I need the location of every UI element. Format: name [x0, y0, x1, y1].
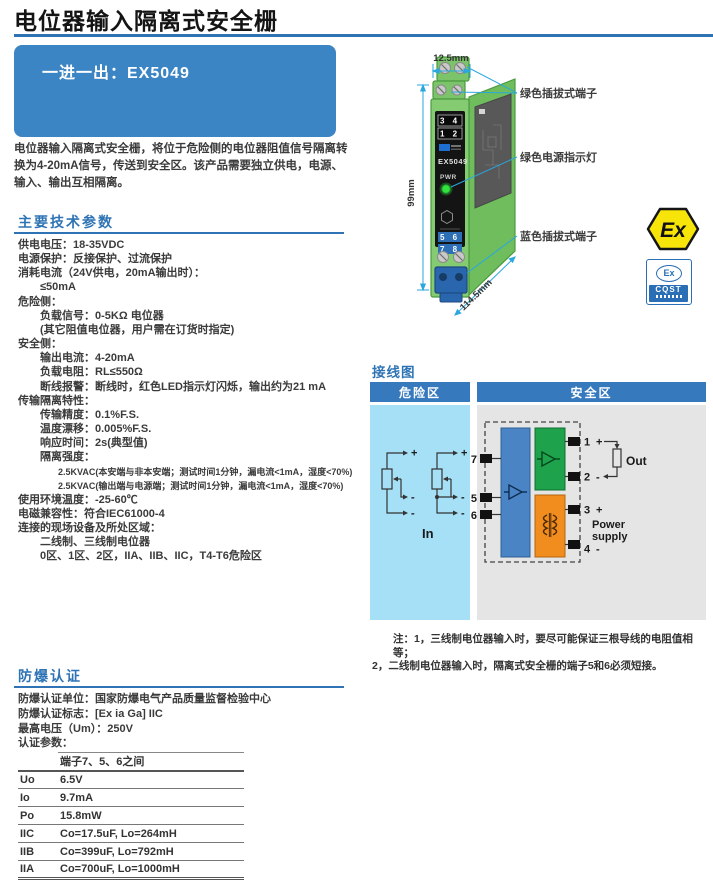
- spec-line: 2.5KVAC(本安端与非本安端；测试时间1分钟，漏电流<1mA，湿度<70%): [18, 465, 370, 479]
- spec-line: 二线制、三线制电位器: [18, 535, 370, 549]
- tech-params-divider: [14, 232, 344, 234]
- wiring-diagram: + - - + - - In: [370, 405, 706, 620]
- side-label-logo: [479, 109, 485, 114]
- pot1-minus2: -: [411, 508, 415, 520]
- spec-line: 响应时间：2s(典型值): [18, 436, 370, 450]
- cert-table-header-row: 端子7、5、6之间: [18, 753, 244, 771]
- cqst-band: CQST: [649, 285, 688, 302]
- potentiometer-2wire: [432, 453, 453, 513]
- power-led: [442, 185, 450, 193]
- page-title: 电位器输入隔离式安全栅: [14, 2, 278, 36]
- cert-table-row: Uo 6.5V: [18, 771, 244, 789]
- spec-line: (其它阻值电位器，用户需在订货时指定): [18, 323, 370, 337]
- spec-line: 传输隔离特性：: [18, 394, 370, 408]
- spec-line: 电磁兼容性：符合IEC61000-4: [18, 507, 370, 521]
- cert-param-value: 9.7mA: [58, 789, 244, 807]
- spec-line: 使用环境温度：-25-60℃: [18, 493, 370, 507]
- cert-line: 认证参数：: [18, 736, 271, 751]
- cert-param-name: Io: [18, 789, 58, 807]
- spec-line: 断线报警：断线时，红色LED指示灯闪烁，输出约为21 mA: [18, 380, 370, 394]
- terminal-5: 5: [471, 493, 477, 505]
- cqst-name: CQST: [649, 285, 688, 295]
- pot2-minus: -: [461, 492, 465, 504]
- cert-param-value: Co=700uF, Lo=1000mH: [58, 861, 244, 879]
- brand-logo: [439, 144, 450, 151]
- out-label: Out: [626, 454, 647, 468]
- cert-table-header-terminals: 端子7、5、6之间: [58, 753, 244, 771]
- cqst-ex-oval: Ex: [656, 265, 682, 282]
- cert-param-value: 6.5V: [58, 771, 244, 789]
- spec-line: 供电电压：18-35VDC: [18, 238, 370, 252]
- cert-param-value: 15.8mW: [58, 807, 244, 825]
- atex-ex-logo: Ex: [645, 205, 701, 253]
- spec-line: 负载电阻：RL≤550Ω: [18, 365, 370, 379]
- cert-table-row: IIB Co=399uF, Lo=792mH: [18, 843, 244, 861]
- cert-heading: 防爆认证: [18, 666, 82, 686]
- cert-line: 防爆认证标志：[Ex ia Ga] IIC: [18, 707, 271, 722]
- terminal-slot: [439, 273, 447, 281]
- terminal-2-sign: -: [596, 472, 600, 484]
- wiring-note-line: 注：1，三线制电位器输入时，要尽可能保证三根导线的电阻值相等；: [372, 633, 713, 660]
- terminal-1: 1: [584, 437, 590, 449]
- cert-table-row: IIA Co=700uF, Lo=1000mH: [18, 861, 244, 879]
- cert-line: 最高电压（Um）：250V: [18, 722, 271, 737]
- zone-bar-safe: 安全区: [477, 382, 706, 402]
- barrier-outline: [485, 422, 580, 562]
- spec-line: 2.5KVAC(输出端与电源端；测试时间1分钟，漏电流<1mA，湿度<70%): [18, 479, 370, 493]
- tech-params-heading: 主要技术参数: [18, 212, 114, 232]
- cert-params-table: 端子7、5、6之间 Uo 6.5V Io 9.7mA Po 15.8mW: [18, 752, 244, 880]
- cert-param-value: Co=17.5uF, Lo=264mH: [58, 825, 244, 843]
- cert-param-name: IIC: [18, 825, 58, 843]
- cert-param-name: Uo: [18, 771, 58, 789]
- terminal-2: 2: [584, 472, 590, 484]
- power-block: [535, 495, 565, 557]
- spec-line: 安全侧：: [18, 337, 370, 351]
- product-description: 电位器输入隔离式安全栅，将位于危险侧的电位器阻值信号隔离转换为4-20mA信号，…: [14, 141, 350, 192]
- wiring-note-line: 2，二线制电位器输入时，隔离式安全栅的端子5和6必须短接。: [372, 660, 713, 674]
- spec-line: 危险侧：: [18, 295, 370, 309]
- terminal-6: 6: [471, 510, 477, 522]
- in-label: In: [422, 526, 434, 541]
- panel-model-text: EX5049: [438, 157, 468, 166]
- terminal-3-sign: +: [596, 505, 602, 517]
- left-terminals: [480, 454, 492, 519]
- terminal-1-sign: +: [596, 437, 602, 449]
- cert-line: 防爆认证单位：国家防爆电气产品质量监督检验中心: [18, 692, 271, 707]
- wiring-heading: 接线图: [372, 361, 416, 381]
- spec-line: 温度漂移：0.005%F.S.: [18, 422, 370, 436]
- cert-table-row: IIC Co=17.5uF, Lo=264mH: [18, 825, 244, 843]
- wiring-notes: 注：1，三线制电位器输入时，要尽可能保证三根导线的电阻值相等； 2，二线制电位器…: [372, 633, 713, 674]
- pot2-plus: +: [461, 448, 467, 460]
- cert-table-header-blank: [18, 753, 58, 771]
- spec-line: 连接的现场设备及所处区域：: [18, 521, 370, 535]
- datasheet-page: 电位器输入隔离式安全栅 一进一出：EX5049 电位器输入隔离式安全栅，将位于危…: [0, 0, 713, 881]
- terminal-row-56: 5 6: [440, 233, 460, 242]
- pot2-minus2: -: [461, 508, 465, 520]
- cert-divider: [14, 686, 344, 688]
- spec-line: ≤50mA: [18, 280, 370, 294]
- model-banner: 一进一出：EX5049: [14, 45, 336, 137]
- panel-pwr-text: PWR: [440, 174, 457, 181]
- power-supply-label-1: Power: [592, 519, 626, 531]
- cert-lines: 防爆认证单位：国家防爆电气产品质量监督检验中心 防爆认证标志：[Ex ia Ga…: [18, 692, 271, 751]
- product-illustration: 3 4 1 2 EX5049 PWR 5 6 7 8: [385, 45, 640, 350]
- zone-bar-hazard: 危险区: [370, 382, 470, 402]
- cqst-logo: Ex CQST: [646, 259, 692, 305]
- cert-param-name: IIB: [18, 843, 58, 861]
- title-divider: [14, 34, 713, 37]
- terminal-row-34: 3 4: [440, 117, 460, 126]
- blue-bottom-terminal: [435, 267, 467, 293]
- spec-line: 0区、1区、2区，IIA、IIB、IIC，T4-T6危险区: [18, 549, 370, 563]
- terminal-slot: [455, 273, 463, 281]
- cert-param-name: IIA: [18, 861, 58, 879]
- pot1-plus: +: [411, 448, 417, 460]
- spec-line: 传输精度：0.1%F.S.: [18, 408, 370, 422]
- spec-line: 电源保护：反接保护、过流保护: [18, 252, 370, 266]
- power-supply-label-2: supply: [592, 531, 628, 543]
- cert-param-name: Po: [18, 807, 58, 825]
- dim-height-label: 99mm: [406, 179, 417, 206]
- spec-line: 输出电流：4-20mA: [18, 351, 370, 365]
- spec-line: 负载信号：0-5KΩ 电位器: [18, 309, 370, 323]
- atex-ex-text: Ex: [660, 219, 687, 242]
- dim-width-label: 12.5mm: [433, 53, 468, 64]
- blue-terminal-tab: [440, 293, 462, 302]
- cert-param-value: Co=399uF, Lo=792mH: [58, 843, 244, 861]
- terminal-3: 3: [584, 505, 590, 517]
- out-load-circuit: [604, 442, 621, 477]
- cert-table-row: Po 15.8mW: [18, 807, 244, 825]
- right-terminals: [568, 437, 580, 549]
- callout-blue-terminal: 蓝色插拔式端子: [520, 229, 597, 243]
- pot1-minus: -: [411, 492, 415, 504]
- terminal-4: 4: [584, 544, 591, 556]
- model-banner-label: 一进一出：EX5049: [42, 59, 190, 83]
- potentiometer-3wire: [382, 453, 403, 513]
- tech-params-list: 供电电压：18-35VDC 电源保护：反接保护、过流保护 消耗电流（24V供电，…: [18, 238, 370, 564]
- terminal-row-12: 1 2: [440, 130, 460, 139]
- spec-line: 消耗电流（24V供电，20mA输出时）：: [18, 266, 370, 280]
- cert-table-row: Io 9.7mA: [18, 789, 244, 807]
- terminal-4-sign: -: [596, 544, 600, 556]
- spec-line: 隔离强度：: [18, 450, 370, 464]
- callout-green-terminal: 绿色插拔式端子: [520, 86, 597, 100]
- cqst-microtext: [656, 295, 682, 298]
- callout-power-led: 绿色电源指示灯: [520, 150, 597, 164]
- terminal-7: 7: [471, 454, 477, 466]
